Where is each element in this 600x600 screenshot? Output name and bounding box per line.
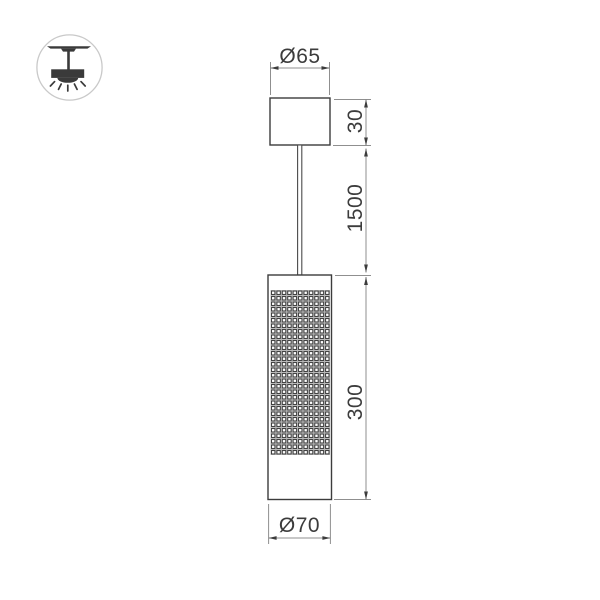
lamp-outline-group <box>268 98 332 500</box>
dim-suspension-length: 1500 <box>344 149 368 273</box>
arrow-left-icon <box>271 66 279 70</box>
dim-label-suspension-length: 1500 <box>344 184 367 233</box>
canopy-outline <box>270 98 330 145</box>
dim-label-body-height: 300 <box>344 384 367 421</box>
arrow-left-icon <box>269 536 277 540</box>
dim-body-height: 300 <box>334 276 371 500</box>
product-dimension-sheet: Ø65 30 1500 <box>0 0 600 600</box>
suspension-wire <box>298 145 302 275</box>
arrow-right-icon <box>322 536 330 540</box>
arrow-down-icon <box>364 138 368 146</box>
arrow-up-icon <box>364 149 368 157</box>
arrow-up-icon <box>364 277 368 285</box>
arrow-up-icon <box>364 100 368 108</box>
dim-canopy-height: 30 <box>333 100 371 146</box>
dimension-drawing: Ø65 30 1500 <box>0 0 600 600</box>
dim-label-canopy-height: 30 <box>344 109 367 133</box>
dim-canopy-diameter: Ø65 <box>271 45 330 95</box>
dim-body-diameter: Ø70 <box>269 504 331 544</box>
dim-label-body-diameter: Ø70 <box>279 514 320 537</box>
arrow-right-icon <box>322 66 330 70</box>
arrow-down-icon <box>364 492 368 500</box>
arrow-down-icon <box>364 265 368 273</box>
mesh-texture <box>271 290 331 455</box>
dim-label-canopy-diameter: Ø65 <box>279 45 320 68</box>
